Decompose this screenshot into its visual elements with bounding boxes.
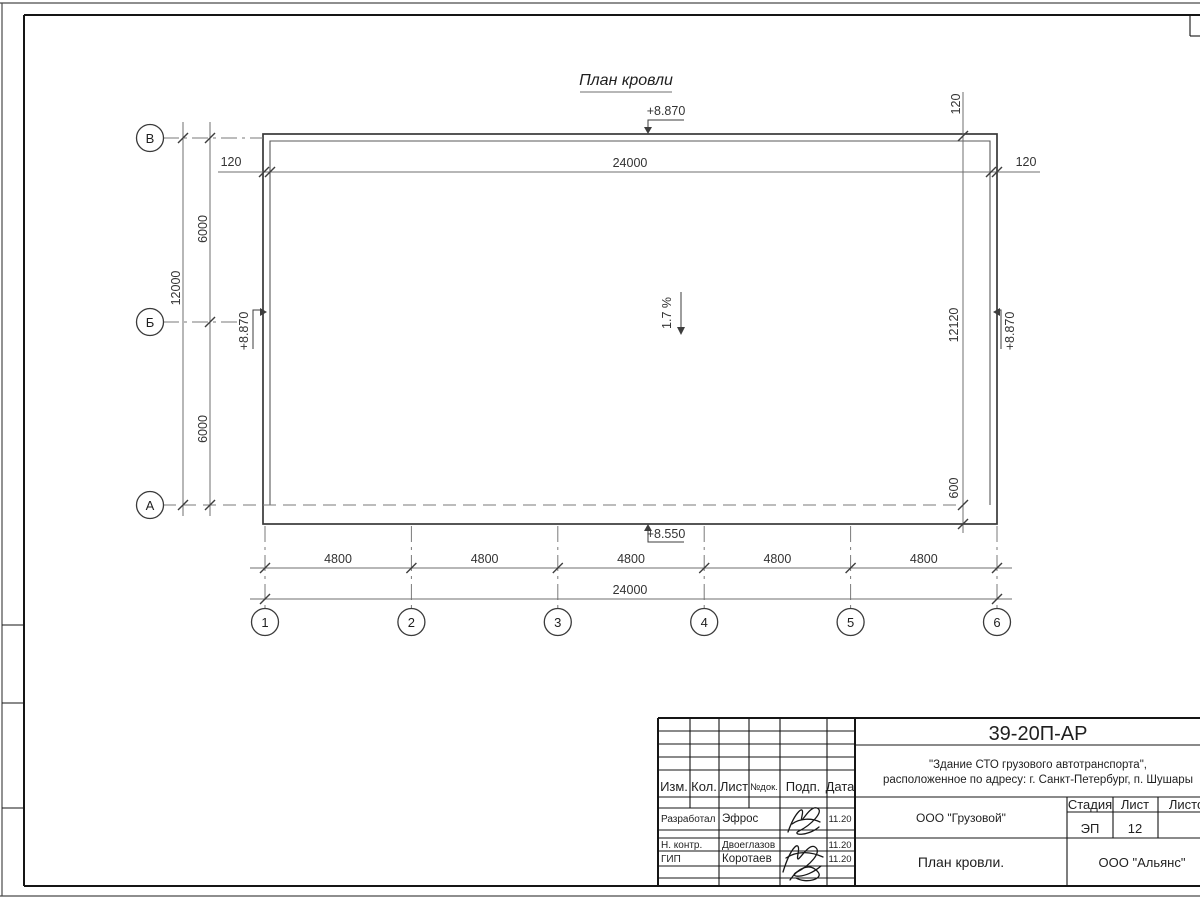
dim-left-total: 12000	[169, 271, 183, 306]
tb-row-name-1: Эфрос	[722, 813, 759, 825]
elevation-right-value: +8.870	[1003, 312, 1017, 351]
axis-bubble-row-v: В	[137, 125, 164, 152]
tb-row-role-1: Разработал	[661, 813, 716, 825]
dim-offset-top-right: 120	[949, 94, 963, 115]
tb-row-name-2: Двоеглазов	[722, 840, 775, 851]
drawing-title: План кровли	[579, 72, 673, 89]
elevation-mark-bottom: +8.550	[644, 524, 685, 542]
axis-label-v: В	[146, 131, 155, 146]
axis-label-4: 4	[701, 615, 708, 630]
tb-col-podp: Подп.	[786, 779, 821, 794]
tb-company: ООО "Альянс"	[1099, 855, 1186, 870]
tb-project-line1: "Здание СТО грузового автотранспорта",	[929, 759, 1147, 771]
tb-row-role-3: ГИП	[661, 854, 681, 865]
dim-top-total: 24000	[613, 156, 648, 170]
tb-project-line2: расположенное по адресу: г. Санкт-Петерб…	[883, 774, 1193, 786]
slope-annotation: 1.7 %	[660, 292, 685, 335]
tb-sheet-value: 12	[1128, 821, 1142, 836]
dim-offset-left: 120	[221, 155, 242, 169]
dimension-lines	[183, 92, 1040, 599]
dim-right-total: 12120	[947, 308, 961, 343]
roof-plan-drawing: План кровли В Б А 1 2 3 4	[0, 0, 1200, 900]
elevation-bottom-value: +8.550	[647, 527, 686, 541]
elevation-left-value: +8.870	[237, 312, 251, 351]
dim-bottom-seg-1: 4800	[324, 552, 352, 566]
dimension-ticks	[178, 131, 1002, 604]
dim-left-seg-1: 6000	[196, 215, 210, 243]
axis-bubbles-columns: 1 2 3 4 5 6	[252, 609, 1011, 636]
elevation-top-value: +8.870	[647, 104, 686, 118]
axis-label-b: Б	[146, 315, 155, 330]
tb-organization: ООО "Грузовой"	[916, 811, 1006, 825]
tb-stage-label: Стадия	[1068, 797, 1112, 812]
dim-bottom-seg-2: 4800	[471, 552, 499, 566]
tb-col-kol: Кол.	[691, 779, 717, 794]
axis-label-3: 3	[554, 615, 561, 630]
dim-bottom-total: 24000	[613, 583, 648, 597]
tb-doc-number: 39-20П-АР	[989, 723, 1088, 745]
dim-bottom-seg-4: 4800	[763, 552, 791, 566]
axis-bubble-row-b: Б	[137, 309, 164, 336]
dim-bottom-seg-5: 4800	[910, 552, 938, 566]
axis-label-a: А	[146, 498, 155, 513]
tb-col-ndok: №док.	[750, 782, 778, 793]
tb-stage-value: ЭП	[1081, 821, 1100, 836]
tb-col-list: Лист	[720, 779, 748, 794]
axis-label-6: 6	[993, 615, 1000, 630]
dim-right-overhang: 600	[947, 478, 961, 499]
tb-row-date-1: 11.20	[828, 814, 851, 825]
axis-label-5: 5	[847, 615, 854, 630]
tb-sheet-label: Лист	[1121, 797, 1149, 812]
dim-bottom-seg-3: 4800	[617, 552, 645, 566]
slope-value: 1.7 %	[660, 297, 674, 329]
tb-col-izm: Изм.	[660, 779, 688, 794]
axis-label-1: 1	[261, 615, 268, 630]
tb-row-date-3: 11.20	[828, 854, 851, 865]
axis-lines	[163, 138, 997, 608]
roof-outline	[263, 134, 997, 524]
drawing-sheet: План кровли В Б А 1 2 3 4	[0, 0, 1200, 900]
tb-row-name-3: Коротаев	[722, 853, 772, 865]
tb-sheets-label: Листов	[1169, 797, 1200, 812]
dim-left-seg-2: 6000	[196, 415, 210, 443]
dim-offset-right: 120	[1016, 155, 1037, 169]
sheet-frame	[2, 15, 1200, 886]
tb-row-date-2: 11.20	[828, 840, 851, 851]
elevation-mark-top: +8.870	[644, 104, 685, 134]
axis-label-2: 2	[408, 615, 415, 630]
tb-row-role-2: Н. контр.	[661, 840, 702, 851]
tb-sheet-name: План кровли.	[918, 854, 1004, 870]
axis-bubble-row-a: А	[137, 492, 164, 519]
tb-col-data: Дата	[826, 779, 856, 794]
